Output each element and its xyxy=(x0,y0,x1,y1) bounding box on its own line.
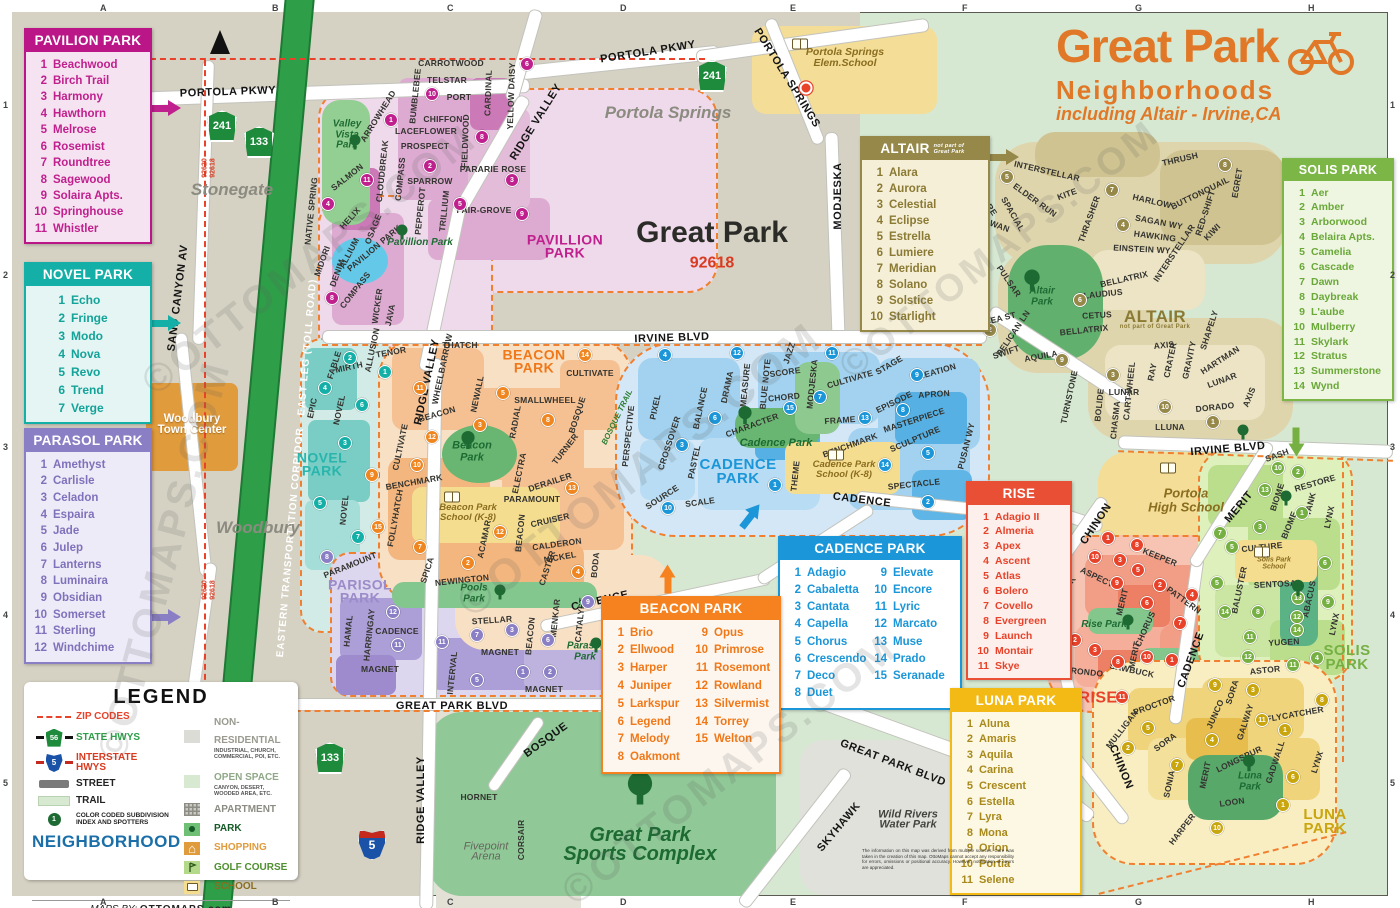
school-marker-icon xyxy=(800,82,813,95)
park-label-luna-park: LunaPark xyxy=(1238,772,1262,793)
area-label-great-park: Great Park xyxy=(636,219,788,248)
spotter-badge: 11 xyxy=(413,381,427,395)
list-item: 7Lyra xyxy=(958,810,1076,826)
interstate-shield-icon: 5 xyxy=(46,754,63,772)
legend-credit: MAPS BY: OTTOMAPS.com xyxy=(32,900,290,908)
school-book-icon xyxy=(444,492,460,503)
spotter-badge: 8 xyxy=(320,550,334,564)
nlabel-luna: LUNAPARK xyxy=(1303,808,1346,837)
list-item: 5Revo xyxy=(50,363,146,381)
spotter-badge: 11 xyxy=(1243,630,1257,644)
list-item: 10Springhouse xyxy=(32,204,146,220)
road-dash-icon xyxy=(36,761,44,764)
spotter-badge: 3 xyxy=(338,436,352,450)
spotter-badge: 15 xyxy=(783,401,797,415)
list-item: 11Lyric xyxy=(872,599,956,616)
spotter-badge: 10 xyxy=(1158,400,1172,414)
street-label: MODJESKA xyxy=(832,162,844,229)
school-book-icon xyxy=(187,883,198,891)
bicycle-icon xyxy=(1285,26,1357,76)
list-item: 3Celadon xyxy=(32,490,146,507)
street-label: MAGNET xyxy=(481,647,519,657)
spotter-badge: 6 xyxy=(541,633,555,647)
spotter-badge: 10 xyxy=(1088,550,1102,564)
list-item: 10Primrose xyxy=(693,642,775,660)
spotter-badge: 6 xyxy=(520,57,534,71)
street-label: CARROTWOOD xyxy=(418,58,484,68)
legend-trail: TRAIL xyxy=(32,796,170,806)
spotter-badge: 4 xyxy=(1310,651,1324,665)
list-item: 8Daybreak xyxy=(1290,290,1388,305)
map-area-patch xyxy=(1008,245,1103,360)
luna-card-title: LUNA PARK xyxy=(952,690,1080,712)
park-tree-icon xyxy=(1238,425,1249,440)
list-item: 11Skye xyxy=(974,659,1066,674)
list-item: 4Espaira xyxy=(32,507,146,524)
spotter-badge: 14 xyxy=(1290,623,1304,637)
novel-card-title: NOVEL PARK xyxy=(26,264,150,286)
list-item: 12Marcato xyxy=(872,616,956,633)
spotter-badge: 1 xyxy=(1206,415,1220,429)
legend-title: LEGEND xyxy=(32,686,290,709)
spotter-badge: 1 xyxy=(378,365,392,379)
list-item: 5Atlas xyxy=(974,569,1066,584)
list-item: 10Montair xyxy=(974,644,1066,659)
spotter-badge: 7 xyxy=(1213,526,1227,540)
spotter-badge: 9 xyxy=(910,368,924,382)
spotter-badge: 2 xyxy=(543,665,557,679)
spotter-badge: 2 xyxy=(1291,465,1305,479)
street-label: PARAMOUNT xyxy=(504,494,560,504)
list-item: 1Aer xyxy=(1290,186,1388,201)
spotter-badge: 10 xyxy=(425,87,439,101)
area-label-wild-rivers: Wild RiversWater Park xyxy=(878,810,938,831)
list-item: 1Adagio xyxy=(786,565,870,582)
list-item: 6Cascade xyxy=(1290,260,1388,275)
park-label-beacon-park: BeaconPark xyxy=(452,440,492,463)
pavilion-park-card: PAVILION PARK 1Beachwood2Birch Trail3Har… xyxy=(24,28,152,244)
list-item: 7Melody xyxy=(609,731,691,749)
list-item: 4Nova xyxy=(50,345,146,363)
spotter-badge: 10 xyxy=(1271,461,1285,475)
street-label: LUNAR xyxy=(1109,387,1140,397)
street-label: GREAT PARK BLVD xyxy=(396,700,508,712)
grid-letter: F xyxy=(962,897,968,907)
shopping-cart-icon: ⌂ xyxy=(188,841,196,856)
list-item: 3Harmony xyxy=(32,89,146,105)
altair-card-subtitle: not part of Great Park xyxy=(934,143,970,155)
school-label-beacon: Beacon ParkSchool (K-8) xyxy=(439,503,497,523)
street-label: CARDINAL xyxy=(482,70,494,116)
spotter-badge: 1 xyxy=(384,113,398,127)
spotter-icon: 1 xyxy=(48,813,61,826)
spotter-badge: 9 xyxy=(365,468,379,482)
spotter-badge: 1 xyxy=(1276,798,1290,812)
grid-number: 1 xyxy=(1390,100,1395,110)
area-label-portola-springs: Portola Springs xyxy=(605,105,732,121)
grid-letter: H xyxy=(1308,3,1315,13)
school-label-portola-hs: PortolaHigh School xyxy=(1148,486,1224,513)
spotter-badge: 8 xyxy=(1111,655,1125,669)
grid-letter: B xyxy=(272,3,279,13)
school-book-icon xyxy=(1160,463,1176,474)
spotter-badge: 9 xyxy=(1110,576,1124,590)
spotter-badge: 9 xyxy=(1208,678,1222,692)
grid-letter: G xyxy=(1135,3,1142,13)
list-item: 7Lanterns xyxy=(32,557,146,574)
spotter-badge: 10 xyxy=(661,501,675,515)
street-label: CADENCE xyxy=(375,626,418,636)
list-item: 3Cantata xyxy=(786,599,870,616)
spotter-badge: 2 xyxy=(1153,578,1167,592)
list-item: 2Ellwood xyxy=(609,642,691,660)
list-item: 4Capella xyxy=(786,616,870,633)
list-item: 3Aquila xyxy=(958,748,1076,764)
spotter-badge: 9 xyxy=(1055,353,1069,367)
spotter-badge: 13 xyxy=(858,411,872,425)
title-line1: Great Park xyxy=(1056,26,1279,67)
list-item: 3Celestial xyxy=(868,197,984,213)
spotter-badge: 1 xyxy=(1295,506,1309,520)
grid-number: 3 xyxy=(1390,442,1395,452)
spotter-badge: 3 xyxy=(1113,553,1127,567)
list-item: 1Aluna xyxy=(958,717,1076,733)
grid-letter: D xyxy=(620,897,627,907)
legend-spotter: 1COLOR CODED SUBDIVISION INDEX AND SPOTT… xyxy=(32,812,170,826)
list-item: 1Beachwood xyxy=(32,57,146,73)
spotter-badge: 2 xyxy=(921,495,935,509)
grid-number: 4 xyxy=(1390,610,1395,620)
list-item: 4Juniper xyxy=(609,678,691,696)
spotter-badge: 11 xyxy=(1255,713,1269,727)
list-item: 4Belaira Apts. xyxy=(1290,230,1388,245)
spotter-badge: 14 xyxy=(878,458,892,472)
spotter-badge: 5 xyxy=(1210,576,1224,590)
grid-number: 1 xyxy=(3,100,8,110)
list-item: 13Silvermist xyxy=(693,696,775,714)
list-item: 6Trend xyxy=(50,381,146,399)
nlabel-solis: SOLISPARK xyxy=(1323,644,1370,673)
list-item: 5Melrose xyxy=(32,122,146,138)
title-line2: Neighborhoods xyxy=(1056,76,1390,105)
list-item: 2Cabaletta xyxy=(786,582,870,599)
spotter-badge: 5 xyxy=(1000,170,1014,184)
nlabel-parisol: PARISOLPARK xyxy=(328,579,392,606)
spotter-badge: 14 xyxy=(1218,605,1232,619)
list-item: 3Arborwood xyxy=(1290,215,1388,230)
street-label: RIDGE VALLEY xyxy=(415,756,427,844)
spotter-badge: 1 xyxy=(1165,653,1179,667)
list-item: 9Solaira Apts. xyxy=(32,188,146,204)
spotter-badge: 5 xyxy=(921,446,935,460)
park-tree-icon xyxy=(628,772,652,805)
spotter-badge: 8 xyxy=(325,291,339,305)
nlabel-beacon: BEACONPARK xyxy=(502,349,565,376)
spotter-badge: 4 xyxy=(1205,733,1219,747)
legend-street: STREET xyxy=(32,779,170,789)
park-tree-icon xyxy=(1243,755,1255,772)
solis-card-title: SOLIS PARK xyxy=(1284,160,1392,181)
spotter-badge: 5 xyxy=(453,197,467,211)
spotter-badge: 5 xyxy=(1141,721,1155,735)
spotter-badge: 7 xyxy=(413,540,427,554)
park-tree-icon xyxy=(189,826,195,832)
list-item: 1Echo xyxy=(50,291,146,309)
spotter-badge: 12 xyxy=(386,605,400,619)
list-item: 3Apex xyxy=(974,539,1066,554)
spotter-badge: 3 xyxy=(1246,683,1260,697)
grid-number: 5 xyxy=(3,778,8,788)
park-tree-icon xyxy=(1281,491,1292,506)
nlabel-cadence: CADENCEPARK xyxy=(700,458,777,487)
spotter-badge: 2 xyxy=(343,351,357,365)
list-item: 5Camelia xyxy=(1290,245,1388,260)
grid-letter: G xyxy=(1135,897,1142,907)
altair-card-title: ALTAIR xyxy=(880,142,929,156)
list-item: 1Amethyst xyxy=(32,457,146,474)
list-item: 9Elevate xyxy=(872,565,956,582)
list-item: 6Julep xyxy=(32,540,146,557)
list-item: 4Eclipse xyxy=(868,213,984,229)
boundary-dash-line xyxy=(1342,462,1344,762)
great-park-map: EASTERN TRANSPORTATION CORRIDOR - EAST L… xyxy=(0,0,1400,908)
spotter-badge: 7 xyxy=(1170,758,1184,772)
street-label: SMALLWHEEL xyxy=(514,395,576,405)
nlabel-pavillion: PAVILLIONPARK xyxy=(527,234,603,261)
spotter-badge: 12 xyxy=(1290,610,1304,624)
spotter-badge: 1 xyxy=(1101,531,1115,545)
golfer-icon xyxy=(187,862,197,873)
legend-neighborhood: NEIGHBORHOOD xyxy=(32,833,170,850)
school-label-solis: Solis ParkSchool xyxy=(1257,557,1291,572)
spotter-badge: 7 xyxy=(351,530,365,544)
list-item: 2Almeria xyxy=(974,524,1066,539)
list-item: 6Bolero xyxy=(974,584,1066,599)
list-item: 1Brio xyxy=(609,625,691,643)
park-tree-icon xyxy=(1292,580,1304,597)
list-item: 7Verge xyxy=(50,399,146,417)
list-item: 8Luminaira xyxy=(32,573,146,590)
street-label: LLUNA xyxy=(1155,422,1185,432)
list-item: 6Rosemist xyxy=(32,139,146,155)
list-item: 14Wynd xyxy=(1290,379,1388,394)
list-item: 4Ascent xyxy=(974,554,1066,569)
list-item: 5Estrella xyxy=(868,229,984,245)
list-item: 10Mulberry xyxy=(1290,320,1388,335)
grid-letter: A xyxy=(100,3,107,13)
cadence-card-title: CADENCE PARK xyxy=(780,538,960,560)
legend-park: PARK xyxy=(170,823,290,836)
spotter-badge: 2 xyxy=(1121,741,1135,755)
area-label-stonegate: Stonegate xyxy=(191,182,273,198)
list-item: 8Sagewood xyxy=(32,172,146,188)
spotter-badge: 8 xyxy=(1251,605,1265,619)
spotter-badge: 3 xyxy=(1106,368,1120,382)
beacon-card-title: BEACON PARK xyxy=(603,598,779,620)
street-label: 92620 xyxy=(202,158,209,177)
spotter-badge: 5 xyxy=(1131,563,1145,577)
area-label-ps-elem-school: Portola SpringsElem.School xyxy=(806,47,884,69)
spotter-badge: 3 xyxy=(1088,643,1102,657)
list-item: 9L'aube xyxy=(1290,305,1388,320)
list-item: 8Evergreen xyxy=(974,614,1066,629)
spotter-badge: 6 xyxy=(1286,770,1300,784)
spotter-badge: 10 xyxy=(410,458,424,472)
spotter-badge: 8 xyxy=(1130,538,1144,552)
list-item: 2Birch Trail xyxy=(32,73,146,89)
street-label: PORT xyxy=(447,92,471,102)
pavilion-card-title: PAVILION PARK xyxy=(26,30,150,52)
spotter-badge: 4 xyxy=(1116,218,1130,232)
spotter-badge: 5 xyxy=(313,496,327,510)
spotter-badge: 6 xyxy=(1073,293,1087,307)
list-item: 7Roundtree xyxy=(32,155,146,171)
list-item: 2Amber xyxy=(1290,200,1388,215)
grid-letter: H xyxy=(1308,897,1315,907)
list-item: 6Estella xyxy=(958,795,1076,811)
spotter-badge: 9 xyxy=(581,595,595,609)
legend-card: LEGEND ZIP CODES 56STATE HWYS 5INTERSTAT… xyxy=(24,682,298,880)
list-item: 6Legend xyxy=(609,714,691,732)
grid-number: 2 xyxy=(3,270,8,280)
street-label: MAGNET xyxy=(361,664,399,674)
list-item: 11Rosemont xyxy=(693,660,775,678)
spotter-badge: 7 xyxy=(470,628,484,642)
grid-letter: C xyxy=(447,3,454,13)
area-label-zip-92618: 92618 xyxy=(690,255,735,270)
road-dash-icon xyxy=(65,761,73,764)
list-item: 1Alara xyxy=(868,165,984,181)
spotter-badge: 8 xyxy=(896,403,910,417)
legend-school: SCHOOL xyxy=(170,881,290,894)
parasol-card-title: PARASOL PARK xyxy=(26,430,150,452)
park-label-pavillion-park: Pavillion Park xyxy=(387,238,453,249)
list-item: 5Larkspur xyxy=(609,696,691,714)
park-label-valley-vista: ValleyVistaPark xyxy=(333,119,362,151)
list-item: 8Mona xyxy=(958,826,1076,842)
spotter-badge: 8 xyxy=(1218,158,1232,172)
road-dash-icon xyxy=(65,736,73,739)
spotter-badge: 12 xyxy=(1241,650,1255,664)
park-label-rise-park: Rise Park xyxy=(1081,620,1127,631)
street-label: MAGNET xyxy=(525,684,563,694)
list-item: 2Carlisle xyxy=(32,473,146,490)
list-item: 4Carina xyxy=(958,763,1076,779)
legend-golf: GOLF COURSE xyxy=(170,861,290,874)
apartment-icon xyxy=(184,803,200,816)
spotter-badge: 5 xyxy=(1225,540,1239,554)
list-item: 3Harper xyxy=(609,660,691,678)
spotter-badge: 8 xyxy=(1315,693,1329,707)
legend-non-residential: NON-RESIDENTIALINDUSTRIAL, CHURCH, COMME… xyxy=(170,712,290,760)
street-label: CETUS xyxy=(1082,309,1112,321)
spotter-badge: 3 xyxy=(505,173,519,187)
street-label: 92618 xyxy=(210,158,217,177)
spotter-badge: 4 xyxy=(321,197,335,211)
area-label-woodbury: Woodbury xyxy=(216,520,300,536)
list-item: 5Crescent xyxy=(958,779,1076,795)
solis-park-card: SOLIS PARK 1Aer2Amber3Arborwood4Belaira … xyxy=(1282,158,1394,401)
map-disclaimer: The information on this map was derived … xyxy=(862,848,1014,871)
legend-open-space: OPEN SPACECANYON, DESERT, WOODED AREA, E… xyxy=(170,767,290,797)
list-item: 12Rowland xyxy=(693,678,775,696)
park-label-parasol-park: ParasolPark xyxy=(567,642,603,663)
street-label: HORNET xyxy=(460,792,497,802)
spotter-badge: 9 xyxy=(515,207,529,221)
grid-letter: A xyxy=(100,897,107,907)
zip-line-icon xyxy=(37,716,71,718)
list-item: 7Covello xyxy=(974,599,1066,614)
spotter-badge: 11 xyxy=(1286,658,1300,672)
rise-card: RISE 1Adagio II2Almeria3Apex4Ascent5Atla… xyxy=(966,481,1072,680)
grid-letter: E xyxy=(790,3,796,13)
street-label: YUGEN xyxy=(1268,636,1300,648)
list-item: 11Whistler xyxy=(32,221,146,237)
list-item: 9Launch xyxy=(974,629,1066,644)
spotter-badge: 4 xyxy=(571,565,585,579)
spotter-badge: 3 xyxy=(1253,520,1267,534)
grid-number: 5 xyxy=(1390,778,1395,788)
spotter-badge: 7 xyxy=(1173,616,1187,630)
spotter-badge: 14 xyxy=(578,348,592,362)
list-item: 2Aurora xyxy=(868,181,984,197)
spotter-badge: 3 xyxy=(505,623,519,637)
list-item: 12Stratus xyxy=(1290,349,1388,364)
title-line3: including Altair - Irvine,CA xyxy=(1056,105,1390,125)
open-space-icon xyxy=(184,775,200,788)
non-residential-icon xyxy=(184,730,200,743)
list-item: 4Hawthorn xyxy=(32,106,146,122)
road-dash-icon xyxy=(36,736,44,739)
spotter-badge: 8 xyxy=(541,413,555,427)
grid-number: 3 xyxy=(3,442,8,452)
spotter-badge: 5 xyxy=(496,386,510,400)
list-item: 13Summerstone xyxy=(1290,364,1388,379)
spotter-badge: 4 xyxy=(1185,588,1199,602)
street-label: PARARIE ROSE xyxy=(460,164,526,174)
list-item: 10Encore xyxy=(872,582,956,599)
park-label-altair-park: AltairPark xyxy=(1029,287,1055,308)
spotter-badge: 10 xyxy=(1140,650,1154,664)
street-icon xyxy=(39,780,69,788)
grid-letter: F xyxy=(962,3,968,13)
novel-park-card: NOVEL PARK 1Echo2Fringe3Modo4Nova5Revo6T… xyxy=(24,262,152,424)
grid-letter: C xyxy=(447,897,454,907)
spotter-badge: 10 xyxy=(1210,821,1224,835)
nlabel-novel: NOVELPARK xyxy=(297,452,347,479)
spotter-badge: 5 xyxy=(470,673,484,687)
spotter-badge: 9 xyxy=(1321,595,1335,609)
street-label: 92618 xyxy=(210,580,217,599)
list-item: 3Modo xyxy=(50,327,146,345)
street-label: TELSTAR xyxy=(427,75,467,85)
list-item: 7Dawn xyxy=(1290,275,1388,290)
list-item: 11Selene xyxy=(958,873,1076,889)
list-item: 11Skylark xyxy=(1290,335,1388,350)
list-item: 8Oakmont xyxy=(609,749,691,767)
spotter-badge: 12 xyxy=(493,525,507,539)
spotter-badge: 15 xyxy=(371,520,385,534)
spotter-badge: 4 xyxy=(658,348,672,362)
spotter-badge: 6 xyxy=(355,398,369,412)
spotter-badge: 3 xyxy=(473,418,487,432)
legend-shopping: ⌂SHOPPING xyxy=(170,842,290,855)
state-hwy-shield-icon: 56 xyxy=(46,729,63,747)
grid-number: 4 xyxy=(3,610,8,620)
map-title: Great Park Neighborhoods including Altai… xyxy=(1056,26,1390,124)
list-item: 1Adagio II xyxy=(974,510,1066,525)
spotter-badge: 1 xyxy=(1278,723,1292,737)
